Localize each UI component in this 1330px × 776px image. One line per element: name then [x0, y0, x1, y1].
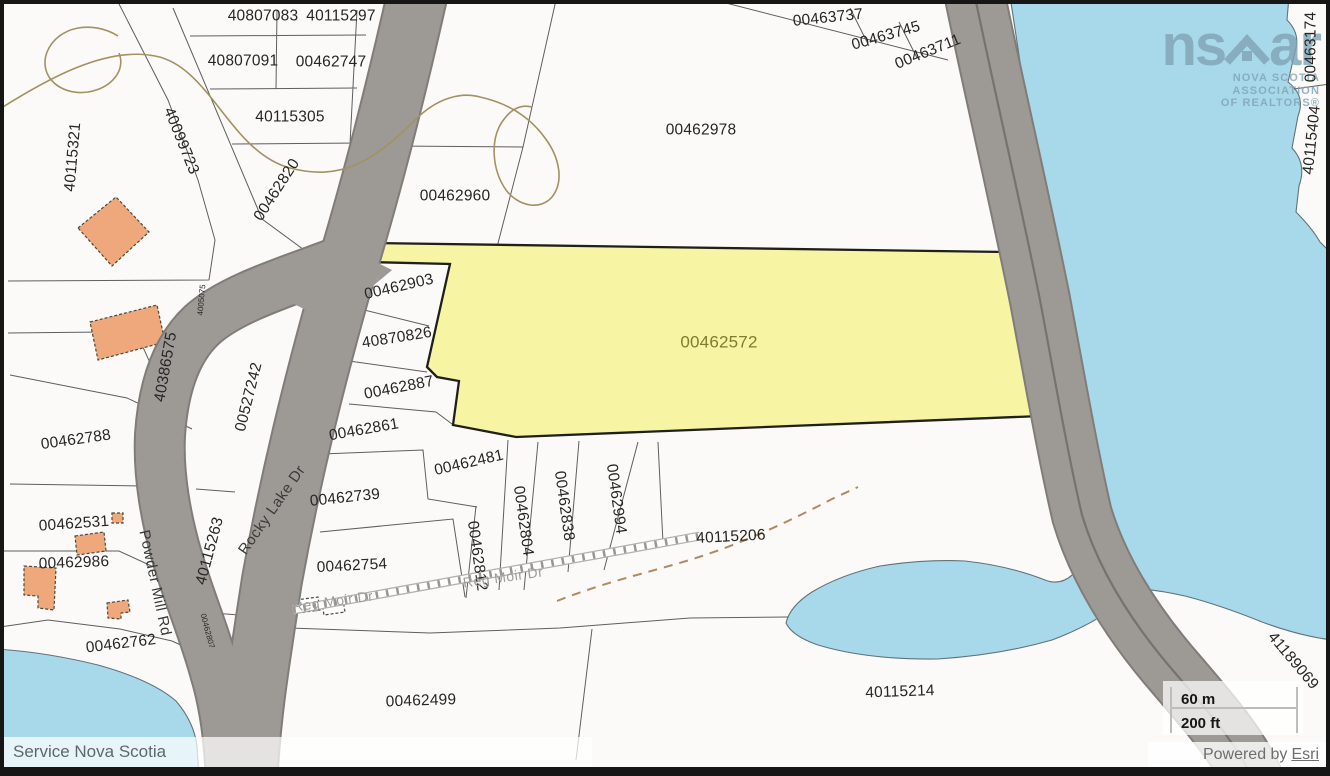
- parcel-label: 00462986: [38, 554, 109, 572]
- subject-parcel-label: 00462572: [680, 334, 757, 351]
- parcel-label: 40807091: [208, 53, 279, 69]
- parcel-label: 40115263: [194, 515, 227, 586]
- parcel-label: 40870826: [361, 325, 433, 351]
- parcel-label: 00462861: [328, 416, 400, 444]
- attribution-right: Powered by Esri: [1148, 742, 1326, 768]
- frame-left: [0, 0, 4, 776]
- parcel-label: 00462739: [309, 487, 381, 510]
- parcel-label: 00462994: [603, 463, 628, 535]
- parcel-label: 00462903: [363, 272, 435, 303]
- parcel-label: 00462807: [199, 613, 216, 649]
- attribution-left: Service Nova Scotia: [4, 737, 592, 767]
- esri-link[interactable]: Esri: [1291, 746, 1319, 764]
- parcel-label: 00462754: [316, 556, 387, 575]
- parcel-label: 40099723: [161, 105, 202, 176]
- parcel-label: 40807083: [228, 8, 299, 24]
- label-layer: 4080708340115297408070910046274740115305…: [0, 0, 1330, 776]
- parcel-label: 00462960: [420, 188, 491, 204]
- frame-right: [1326, 0, 1330, 776]
- parcel-label: 4005075: [197, 284, 208, 316]
- parcel-label: 40115206: [696, 527, 766, 546]
- road-label: Rocky Lake Dr: [236, 463, 308, 558]
- parcel-label: 41189069: [1265, 629, 1321, 692]
- frame-bottom: [0, 767, 1330, 776]
- parcel-label: 00462804: [510, 485, 535, 557]
- parcel-label: 00462531: [38, 514, 109, 534]
- map-canvas[interactable]: 60 m 200 ft ns ar NOVA SCOTIA ASSOCIATIO…: [0, 0, 1330, 776]
- parcel-label: 00527242: [233, 361, 265, 433]
- parcel-label: 00462978: [666, 122, 737, 138]
- attribution-left-text: Service Nova Scotia: [13, 742, 166, 762]
- parcel-label: 40115214: [865, 683, 935, 701]
- parcel-label: 00462481: [433, 448, 505, 479]
- road-label: Reg Moir Dr: [292, 588, 374, 613]
- parcel-label: 00462788: [40, 427, 112, 452]
- parcel-label: 40386575: [152, 331, 180, 403]
- parcel-label: 40115305: [255, 109, 324, 125]
- road-label: Powder Mill Rd: [136, 529, 173, 638]
- parcel-label: 40115297: [306, 8, 375, 24]
- parcel-label: 00463737: [792, 7, 864, 30]
- frame-top: [0, 0, 1330, 4]
- parcel-label: 00462838: [551, 470, 576, 542]
- parcel-label: 00462887: [363, 374, 435, 403]
- parcel-label: 40115321: [62, 122, 83, 193]
- parcel-label: 00463174: [1303, 12, 1319, 83]
- parcel-label: 00462499: [385, 692, 456, 710]
- powered-by-text: Powered by: [1203, 746, 1288, 764]
- parcel-label: 00462762: [85, 632, 157, 656]
- parcel-label: 40115404: [1301, 105, 1324, 176]
- parcel-label: 00462747: [296, 54, 367, 70]
- parcel-label: 00462820: [251, 156, 302, 224]
